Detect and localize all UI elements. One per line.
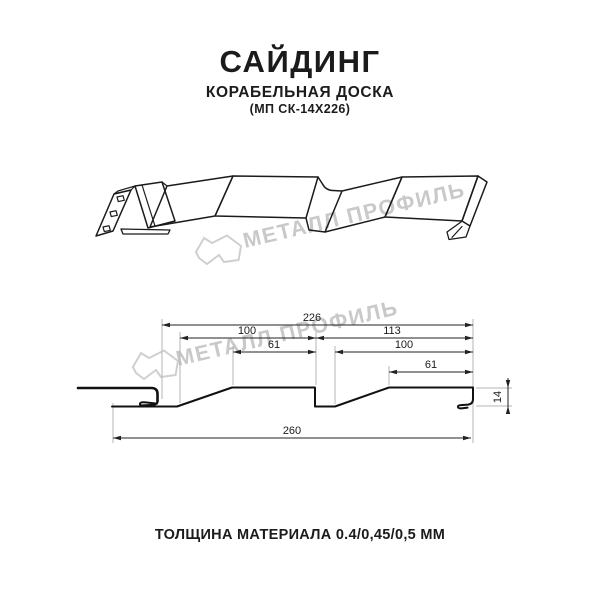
dim-label-right-flat: 61 <box>425 359 437 371</box>
metall-profil-logo-icon <box>196 236 241 265</box>
lock-seam-curl <box>140 402 158 406</box>
dimension-lines <box>113 325 508 438</box>
technical-drawing: МЕТАЛЛ ПРОФИЛЬ МЕТАЛЛ ПРОФИЛЬ <box>0 0 600 600</box>
dim-label-right-inner: 100 <box>395 339 413 351</box>
adjacent-panel-edge <box>78 388 158 402</box>
watermark-brand-text: МЕТАЛЛ ПРОФИЛЬ <box>174 296 401 371</box>
product-drawing-page: САЙДИНГ КОРАБЕЛЬНАЯ ДОСКА (МП СК-14Х226)… <box>0 0 600 600</box>
panel-profile-line <box>112 388 473 409</box>
dim-label-overall-top: 226 <box>303 312 321 324</box>
thickness-note: ТОЛЩИНА МАТЕРИАЛА 0.4/0,45/0,5 ММ <box>0 527 600 543</box>
watermark-bottom: МЕТАЛЛ ПРОФИЛЬ <box>133 296 401 379</box>
dim-label-bottom-total: 260 <box>283 425 301 437</box>
dim-label-right-span: 113 <box>383 325 401 337</box>
dim-label-left-span: 100 <box>238 325 256 337</box>
dim-label-profile-height: 14 <box>492 391 504 403</box>
metall-profil-logo-icon <box>133 351 178 380</box>
dimension-arrows <box>113 323 510 440</box>
profile-outline <box>78 388 473 409</box>
dim-label-left-flat: 61 <box>268 339 280 351</box>
